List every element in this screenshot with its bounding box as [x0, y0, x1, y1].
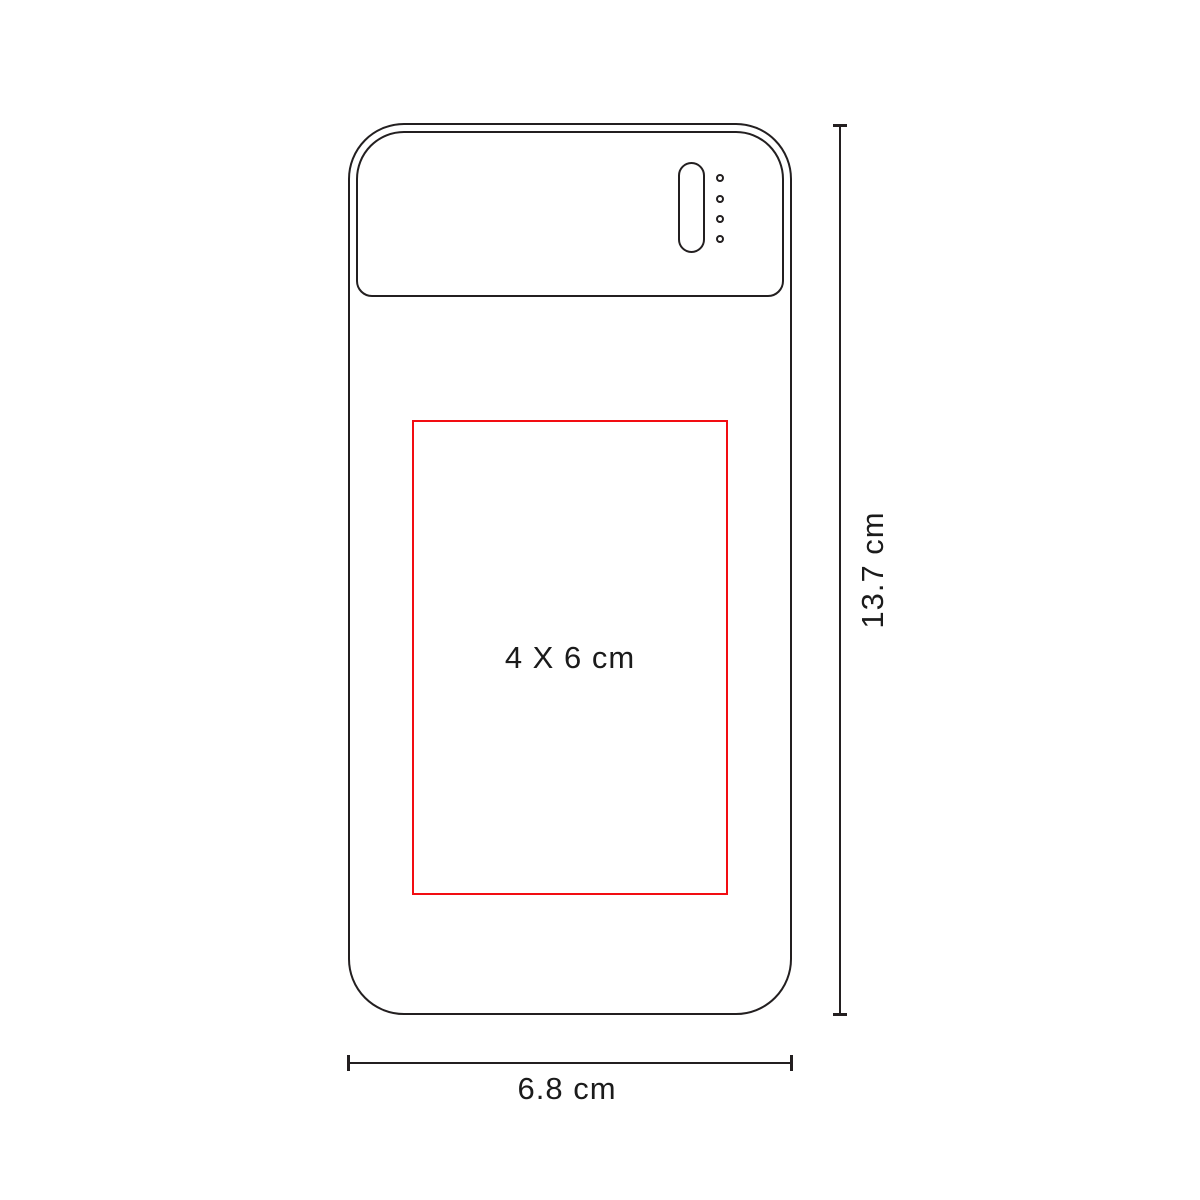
led-dot-icon — [716, 215, 724, 223]
led-dot-icon — [716, 174, 724, 182]
usb-port-icon — [678, 162, 705, 253]
width-dimension-label: 6.8 cm — [517, 1071, 616, 1107]
print-area-label: 4 X 6 cm — [505, 640, 635, 676]
led-dot-icon — [716, 195, 724, 203]
width-dimension-cap-left — [347, 1055, 350, 1071]
diagram-canvas: 4 X 6 cm 13.7 cm 6.8 cm — [0, 0, 1200, 1200]
height-dimension-line — [839, 125, 841, 1015]
height-dimension-cap-top — [833, 124, 847, 127]
device-top-panel-outline — [356, 131, 784, 297]
width-dimension-line — [348, 1062, 792, 1064]
led-dot-icon — [716, 235, 724, 243]
height-dimension-label: 13.7 cm — [855, 511, 891, 628]
print-area-rect: 4 X 6 cm — [412, 420, 728, 895]
width-dimension-cap-right — [790, 1055, 793, 1071]
height-dimension-cap-bottom — [833, 1013, 847, 1016]
